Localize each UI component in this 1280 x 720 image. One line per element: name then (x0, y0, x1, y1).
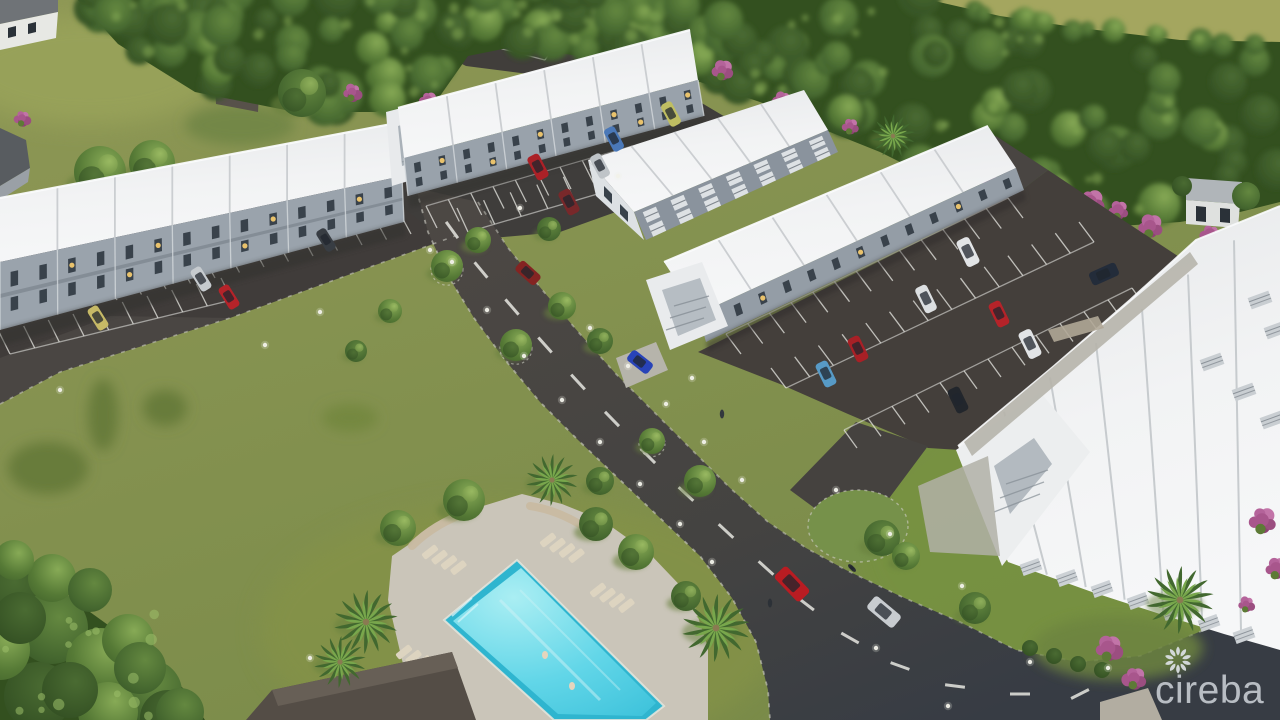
svg-text:cireba: cireba (1155, 669, 1264, 712)
